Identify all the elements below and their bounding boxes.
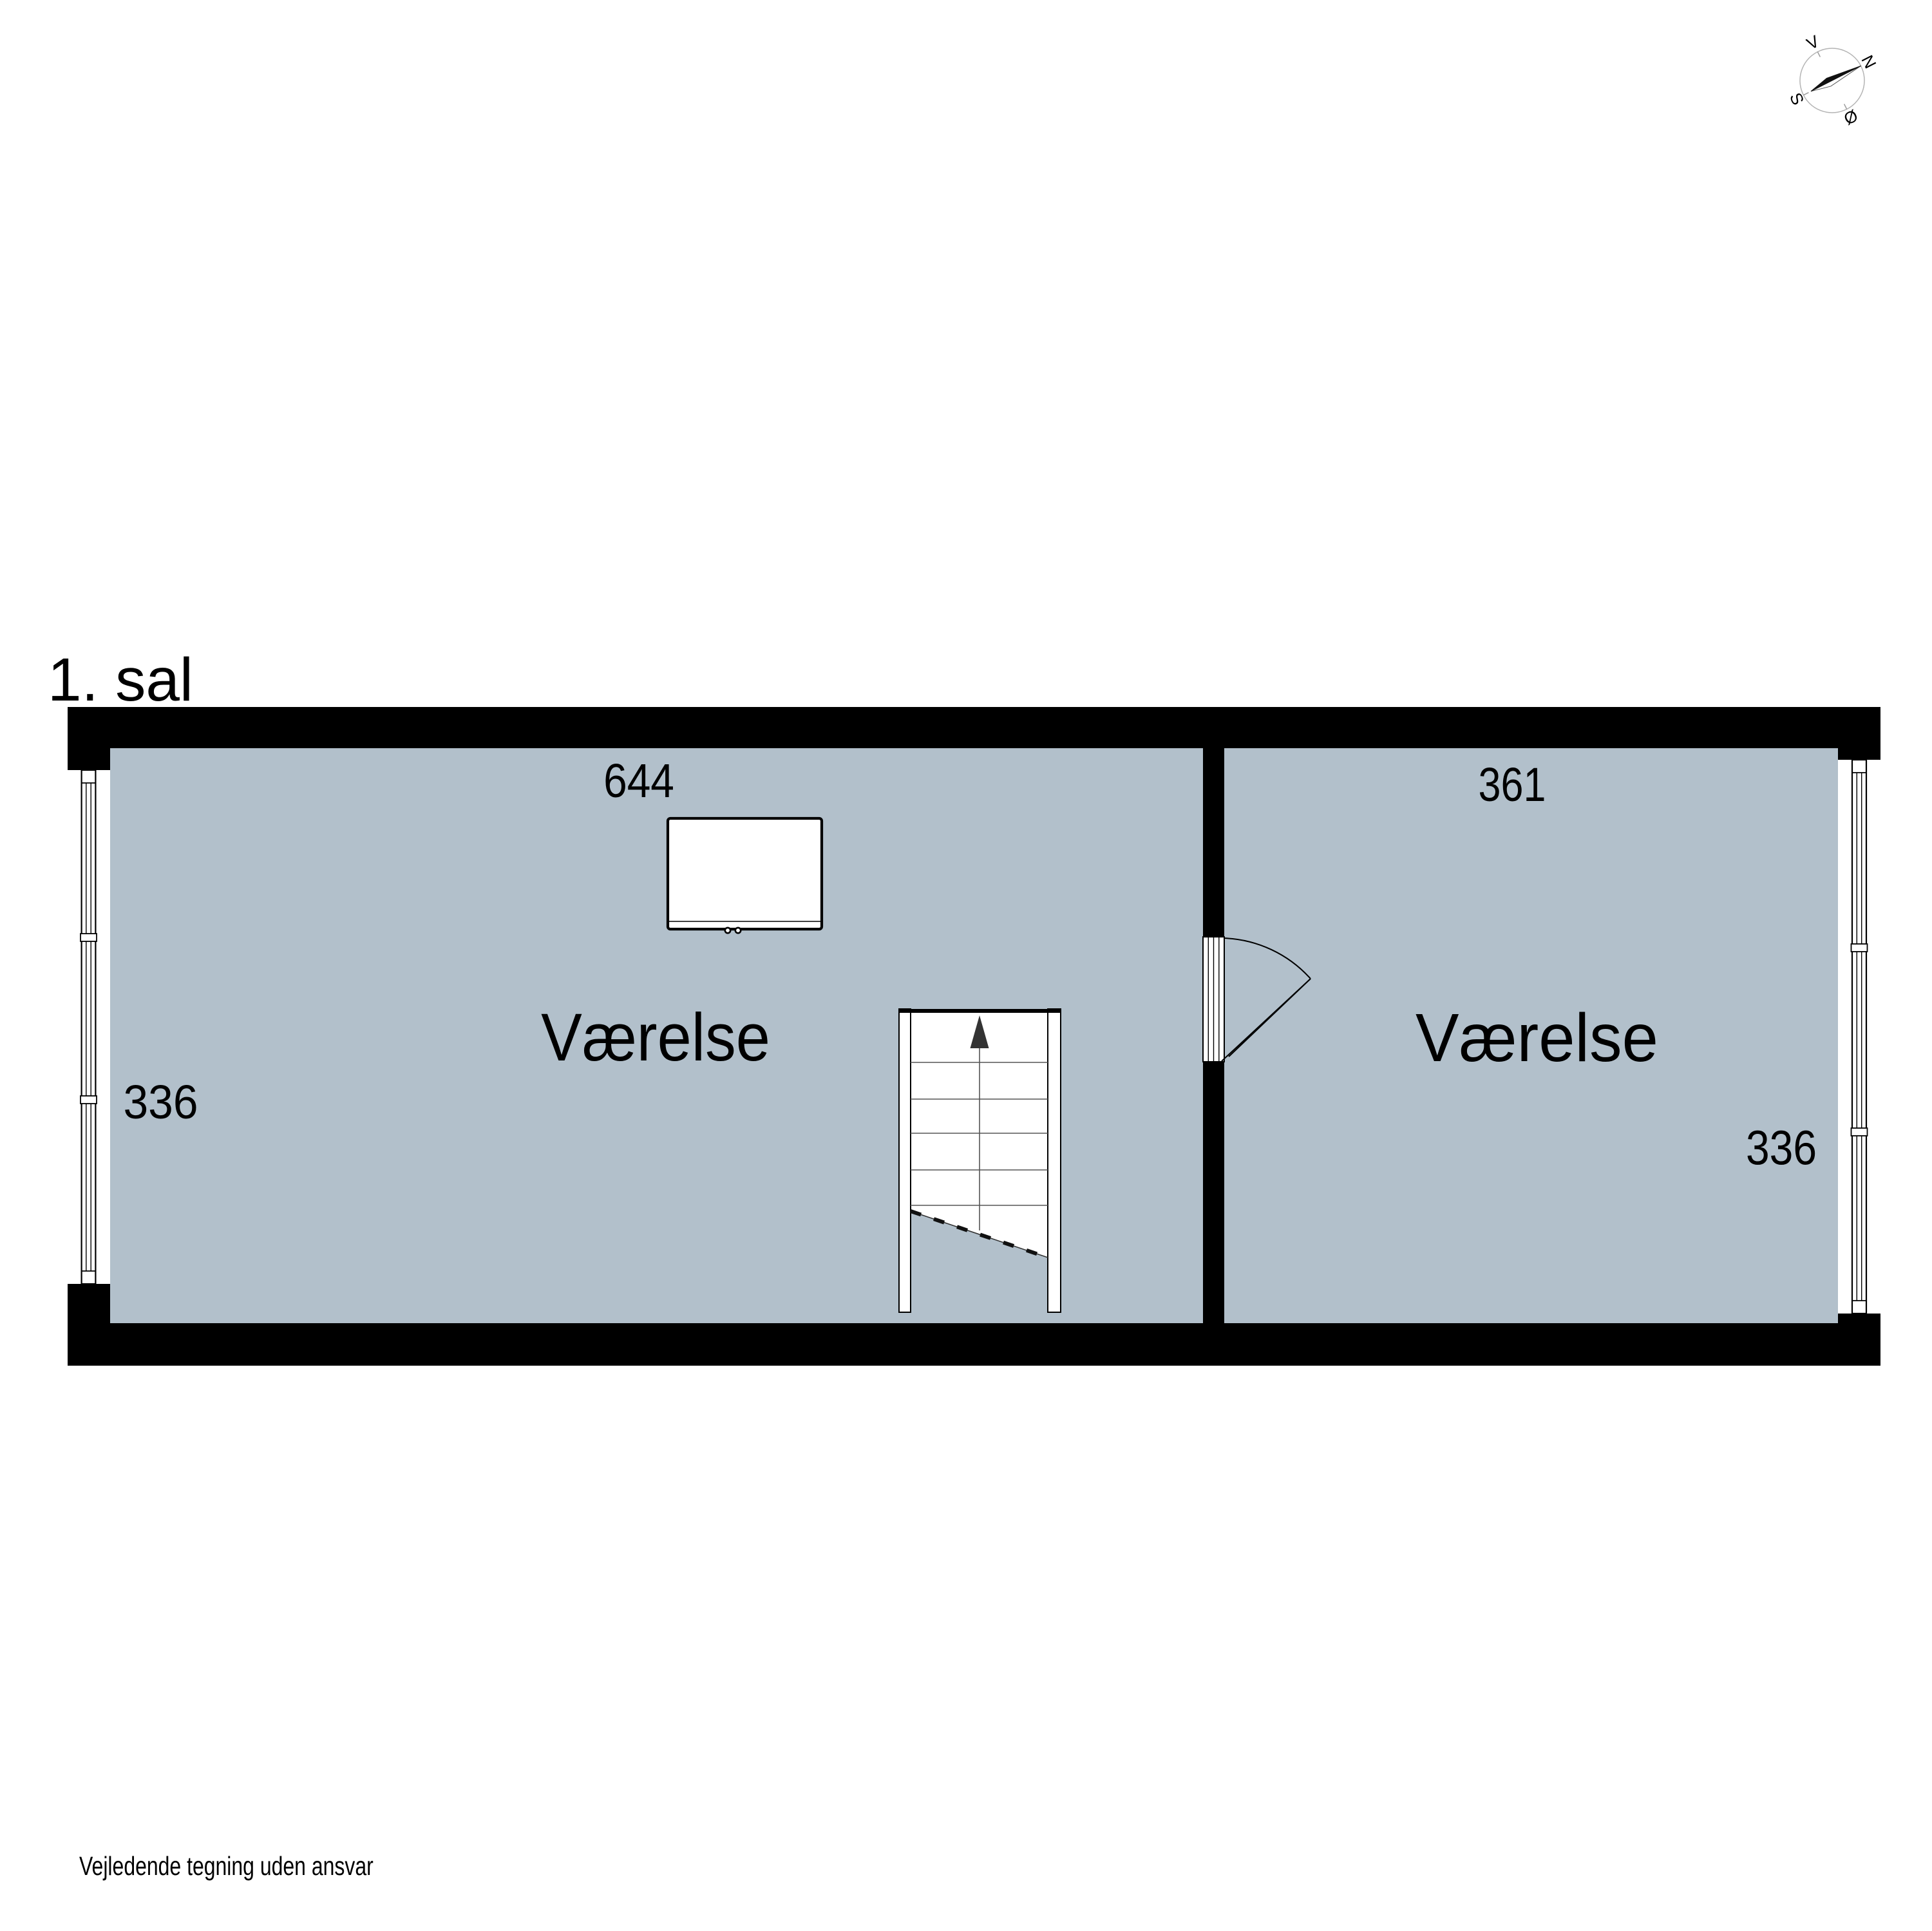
svg-text:1. sal: 1. sal — [48, 646, 193, 714]
svg-text:336: 336 — [123, 1076, 198, 1129]
svg-text:Vejledende tegning uden ansvar: Vejledende tegning uden ansvar — [79, 1851, 374, 1881]
svg-text:336: 336 — [1746, 1121, 1817, 1175]
svg-text:361: 361 — [1479, 758, 1546, 811]
svg-text:Værelse: Værelse — [541, 1000, 770, 1075]
svg-text:644: 644 — [603, 754, 674, 807]
svg-text:Værelse: Værelse — [1416, 999, 1658, 1076]
